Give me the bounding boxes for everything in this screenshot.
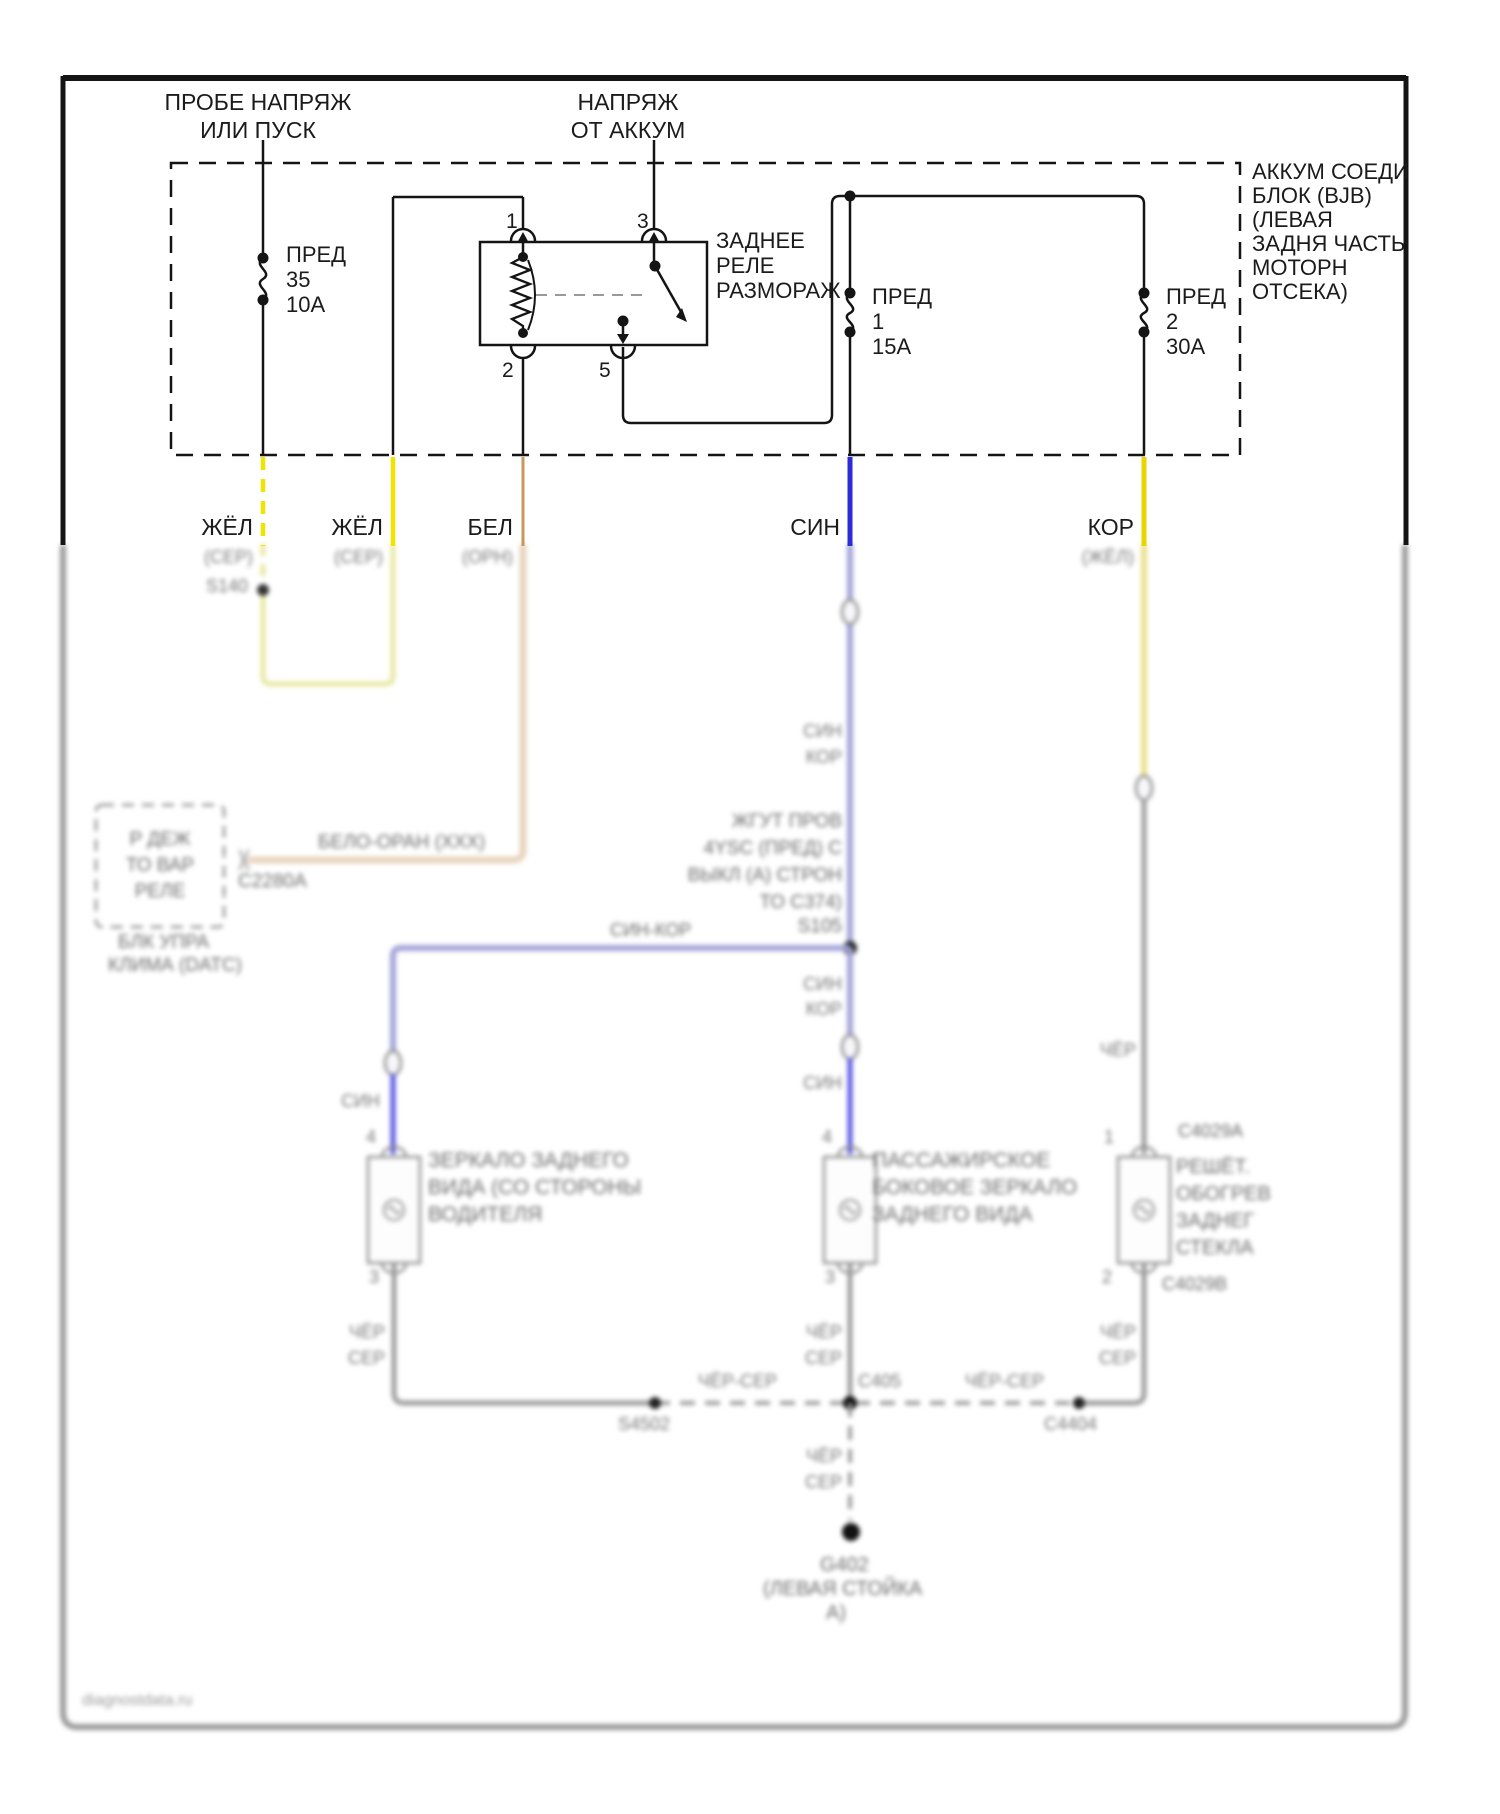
relay-pin-number: 3 [637,211,649,234]
fuse-35-rating: 10А [286,293,325,317]
fuse-2-rating: 30А [1166,335,1205,359]
bjb-label: ЗАДНЯ ЧАСТЬ [1252,232,1405,256]
fuse-1-number: 1 [872,310,884,334]
relay-pin-number: 2 [502,360,514,383]
relay-name: РЕЛЕ [716,254,774,278]
wire-label-zhel1: ЖЁЛ [183,515,253,540]
wiring-diagram-page: (СЕР) S140 (СЕР) (ОРН) (ЖЁЛ) БЕЛО-ОРАН (… [0,0,1500,1814]
fuse-icon [1139,288,1150,338]
fuse-35-number: 35 [286,268,310,292]
fuse-2-name: ПРЕД [1166,285,1226,309]
relay-name: ЗАДНЕЕ [716,229,805,253]
defrost-relay-box [480,242,707,345]
fuse-icon [845,288,856,338]
fuse-35-name: ПРЕД [286,243,346,267]
bjb-label: ОТСЕКА) [1252,280,1348,304]
bjb-label: АККУМ СОЕДИ [1252,160,1409,184]
splice-dot-icon [845,191,856,202]
bjb-label: (ЛЕВАЯ [1252,208,1333,232]
wire-label-kor: КОР [1064,515,1134,540]
battery-label-line2: ОТ АККУМ [543,118,713,143]
bjb-label: МОТОРН [1252,256,1348,280]
fuse-1-rating: 15А [872,335,911,359]
wire-label-bel: БЕЛ [443,515,513,540]
fuse-2-number: 2 [1166,310,1178,334]
relay-name: РАЗМОРАЖ [716,279,841,303]
fuse-icon [258,253,269,306]
outer-border-sides [63,76,1406,545]
wire-label-zhel2: ЖЁЛ [313,515,383,540]
probe-label-line1: ПРОБЕ НАПРЯЖ [148,90,368,115]
relay-pin-number: 1 [506,211,518,234]
bjb-label: БЛОК (BJB) [1252,184,1372,208]
battery-label-line1: НАПРЯЖ [543,90,713,115]
wire-label-sin: СИН [770,515,840,540]
probe-label-line2: ИЛИ ПУСК [148,118,368,143]
relay-pin-number: 5 [599,360,611,383]
fuse-1-name: ПРЕД [872,285,932,309]
